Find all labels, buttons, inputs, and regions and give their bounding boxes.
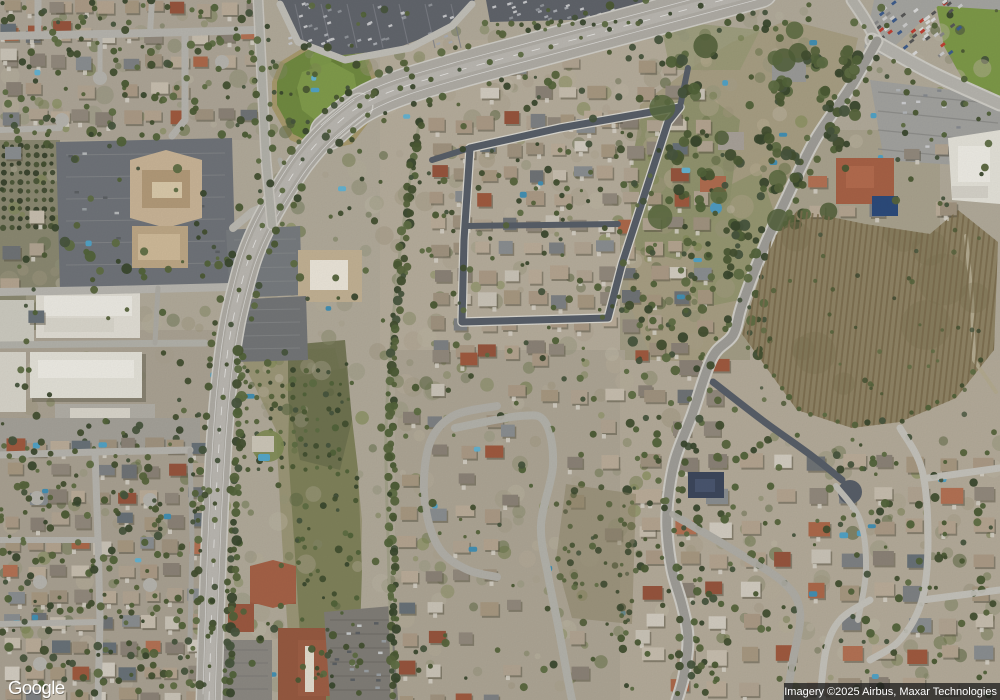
svg-text:Imagery ©2025 Airbus, Maxar Te: Imagery ©2025 Airbus, Maxar Technologies — [784, 686, 997, 698]
svg-text:Google: Google — [8, 677, 65, 698]
